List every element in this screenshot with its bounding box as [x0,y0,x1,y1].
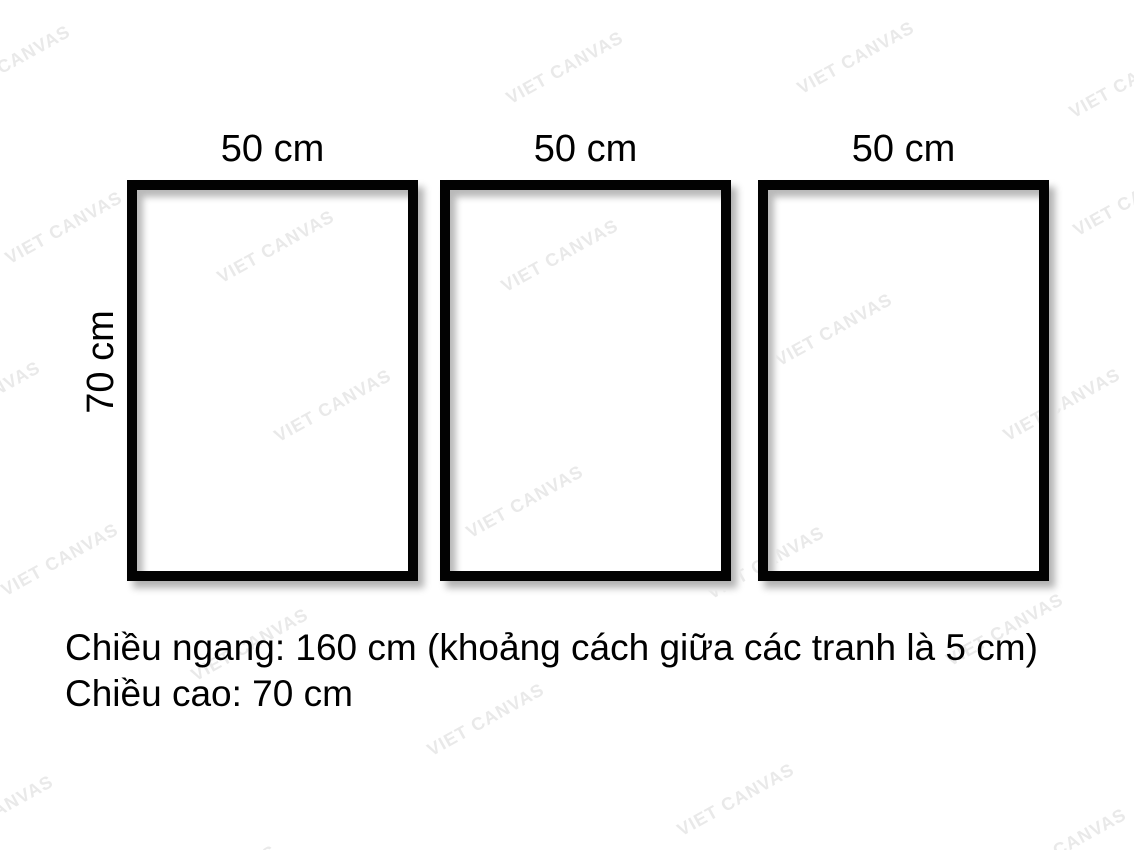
watermark: VIET CANVAS [1070,159,1134,241]
dimension-notes: Chiều ngang: 160 cm (khoảng cách giữa cá… [65,625,1038,717]
frame-height-label: 70 cm [80,310,122,413]
note-line-horizontal: Chiều ngang: 160 cm (khoảng cách giữa cá… [65,625,1038,671]
canvas-size-diagram: 50 cm 50 cm 50 cm 70 cm Chiều ngang: 160… [0,0,1134,850]
watermark: VIET CANVAS [1066,41,1134,123]
watermark: VIET CANVAS [0,357,44,439]
watermark: VIET CANVAS [0,519,122,601]
watermark: VIET CANVAS [0,771,57,850]
watermark: VIET CANVAS [156,841,280,850]
frame-1-width-label: 50 cm [127,128,418,170]
watermark: VIET CANVAS [674,759,798,841]
watermark: VIET CANVAS [503,27,627,109]
frame-2 [440,180,731,581]
frame-3-width-label: 50 cm [758,128,1049,170]
watermark: VIET CANVAS [2,187,126,269]
frame-2-width-label: 50 cm [440,128,731,170]
note-line-vertical: Chiều cao: 70 cm [65,671,1038,717]
frame-1 [127,180,418,581]
frame-3 [758,180,1049,581]
watermark: VIET CANVAS [794,17,918,99]
watermark: VIET CANVAS [1006,804,1130,850]
watermark: VIET CANVAS [0,21,74,103]
